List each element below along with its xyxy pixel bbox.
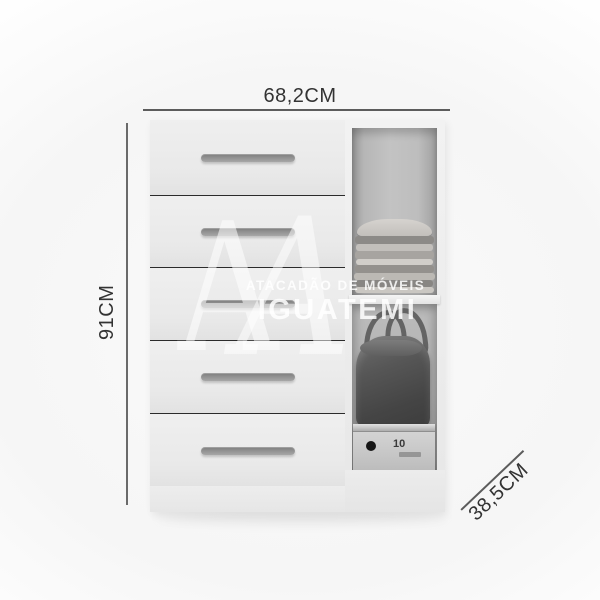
drawer-handle	[201, 154, 295, 162]
drawer	[150, 341, 345, 414]
drawer	[150, 120, 345, 196]
drawer	[150, 268, 345, 341]
depth-dimension-label: 38,5CM	[458, 452, 541, 532]
drawer	[150, 196, 345, 268]
bottom-compartment: 10	[352, 304, 437, 470]
shoe-box-smalltext	[399, 452, 421, 457]
shoe-box-lid	[353, 424, 435, 432]
width-dimension-line	[143, 109, 450, 111]
shoe-box: 10	[353, 424, 435, 470]
product-dimension-diagram: 68,2CM 91CM 38,5CM	[0, 0, 600, 600]
cabinet-plinth	[150, 486, 345, 512]
drawer-stack	[150, 120, 345, 486]
open-side-section: 10	[345, 120, 445, 512]
shelf-divider	[349, 295, 440, 304]
folded-towel	[357, 219, 432, 236]
drawer	[150, 414, 345, 487]
top-compartment	[352, 128, 437, 295]
shoe-box-dot	[366, 441, 376, 451]
cabinet: 10	[150, 120, 445, 512]
height-dimension-line	[126, 123, 128, 505]
side-section-base	[345, 470, 445, 512]
drawer-handle	[201, 228, 295, 236]
drawer-handle	[201, 373, 295, 381]
floor-shadow	[156, 512, 448, 524]
drawer-handle	[201, 447, 295, 455]
width-dimension-label: 68,2CM	[240, 85, 360, 108]
shoe-box-label: 10	[393, 438, 405, 450]
bag-flap	[360, 340, 422, 356]
drawer-handle	[201, 300, 295, 308]
folded-clothes-stack	[354, 219, 435, 293]
height-dimension-label: 91CM	[96, 286, 120, 340]
